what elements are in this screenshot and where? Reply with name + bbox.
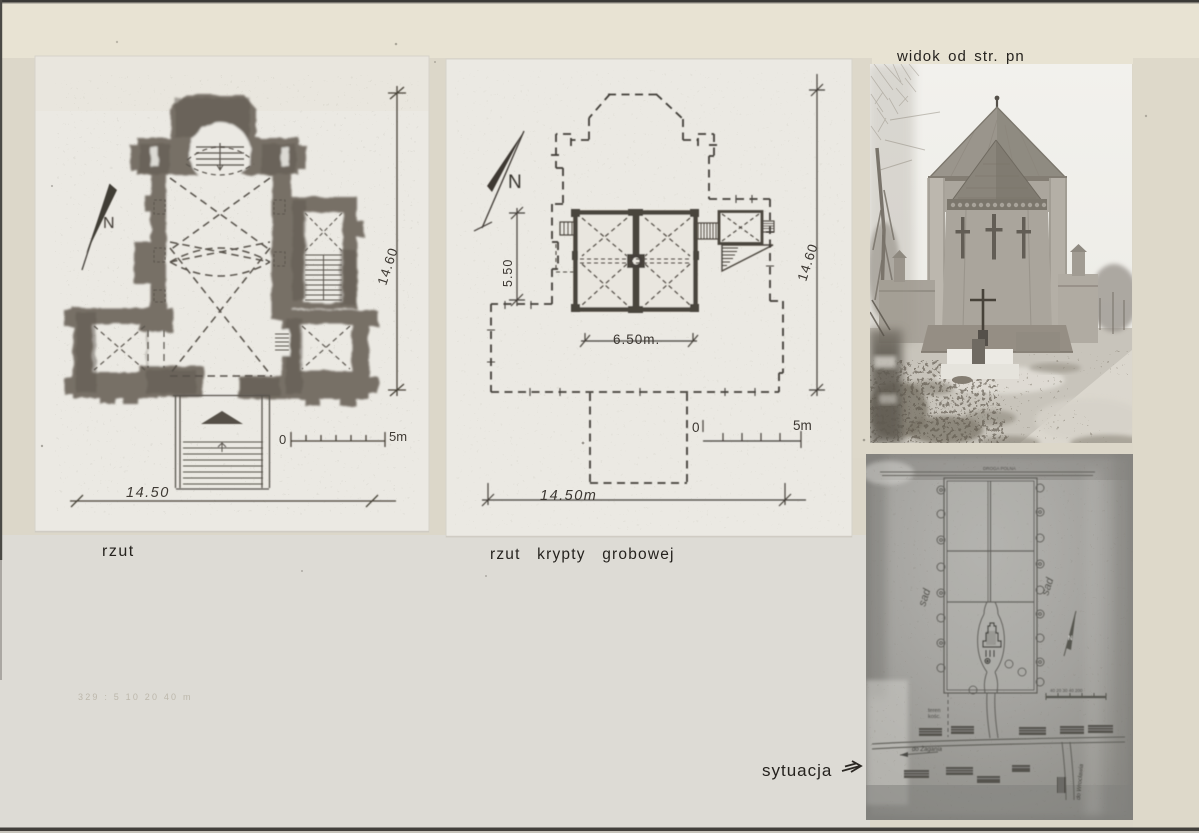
svg-text:do Żagania: do Żagania (912, 746, 943, 753)
svg-text:DROGA POLNA: DROGA POLNA (983, 466, 1016, 471)
svg-text:40 20 30 40 200: 40 20 30 40 200 (1050, 688, 1083, 693)
svg-text:N: N (1068, 636, 1072, 642)
svg-text:6.50m.: 6.50m. (613, 332, 660, 347)
svg-text:14.50m: 14.50m (540, 488, 597, 504)
svg-text:0: 0 (692, 420, 700, 435)
svg-text:N: N (103, 215, 115, 232)
svg-text:rzut: rzut (102, 543, 135, 560)
svg-text:5m: 5m (793, 418, 812, 433)
svg-text:0: 0 (279, 432, 286, 447)
svg-text:329 : 5 10 20 40 m: 329 : 5 10 20 40 m (78, 692, 193, 702)
svg-text:N: N (508, 172, 522, 193)
svg-text:kośc.: kośc. (928, 714, 941, 720)
svg-text:widok od str. pn: widok od str. pn (896, 48, 1025, 65)
svg-text:sytuacja: sytuacja (762, 761, 832, 780)
svg-text:14.50: 14.50 (126, 485, 170, 501)
svg-text:rzut krypty grobowej: rzut krypty grobowej (490, 546, 675, 563)
svg-text:5.50: 5.50 (501, 259, 515, 287)
svg-text:5m: 5m (389, 429, 407, 444)
